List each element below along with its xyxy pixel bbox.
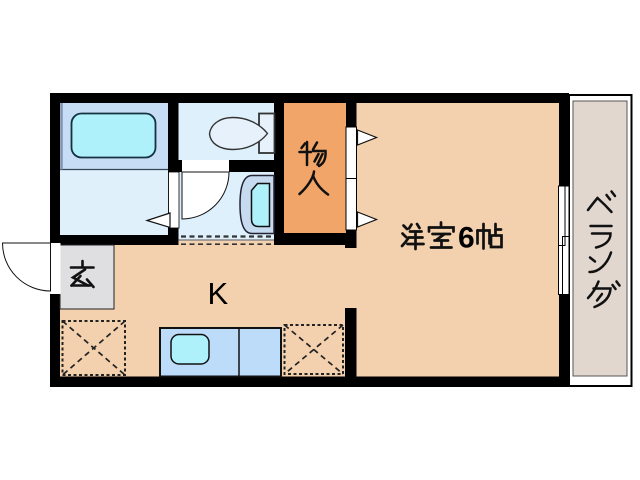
svg-text:K: K xyxy=(208,276,229,311)
svg-text:6: 6 xyxy=(458,222,475,255)
